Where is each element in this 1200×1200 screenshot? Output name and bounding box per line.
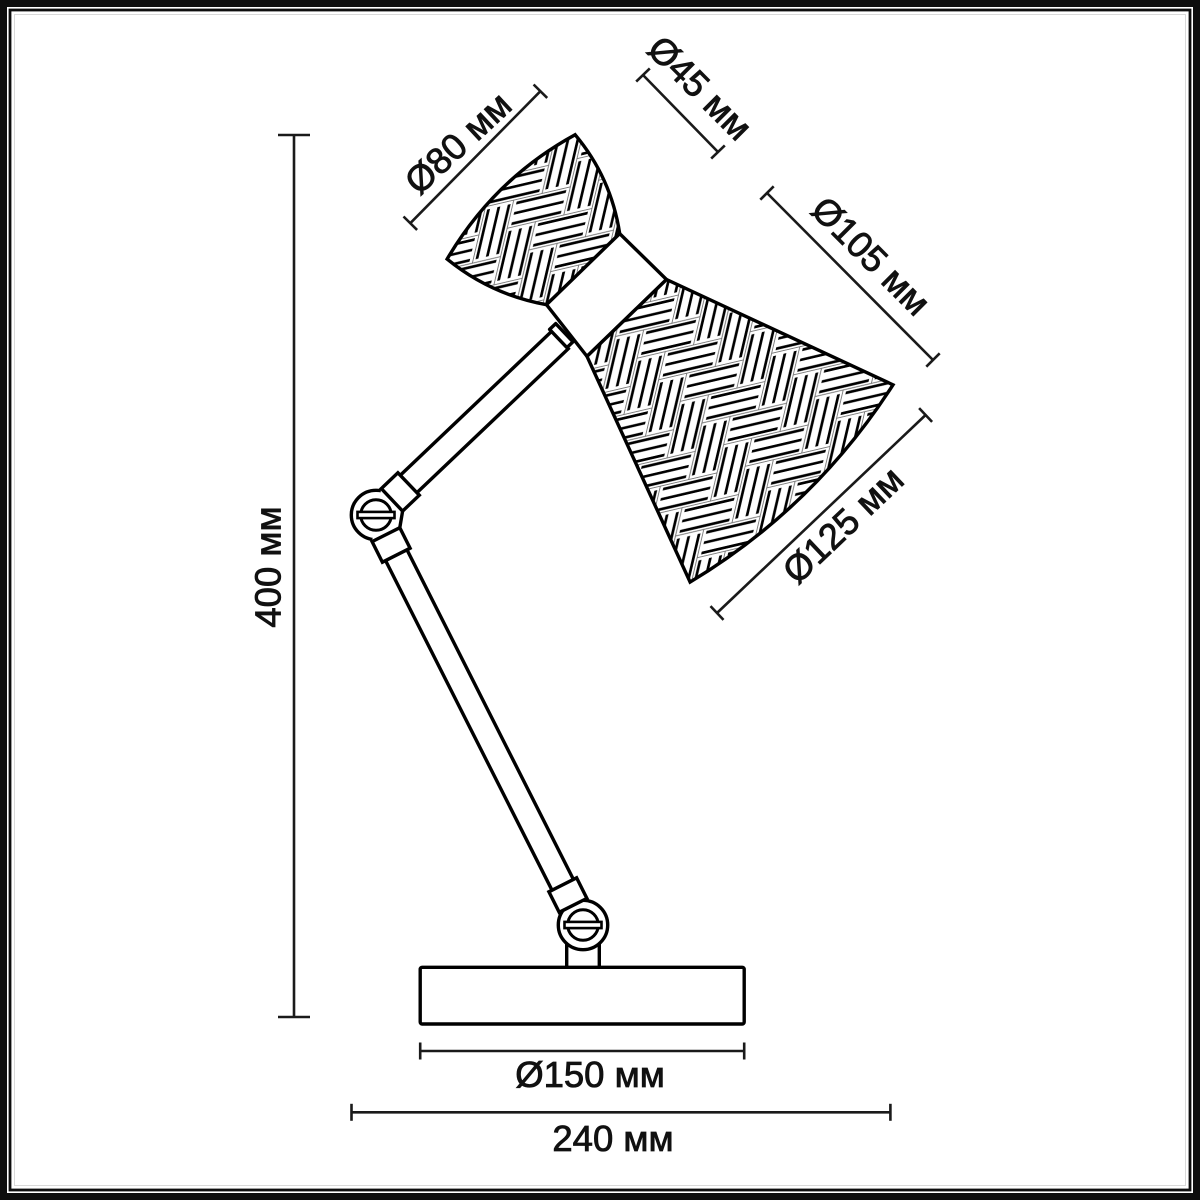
- svg-text:400 мм: 400 мм: [248, 506, 289, 627]
- svg-text:240 мм: 240 мм: [552, 1118, 673, 1159]
- svg-text:Ø150 мм: Ø150 мм: [515, 1054, 665, 1095]
